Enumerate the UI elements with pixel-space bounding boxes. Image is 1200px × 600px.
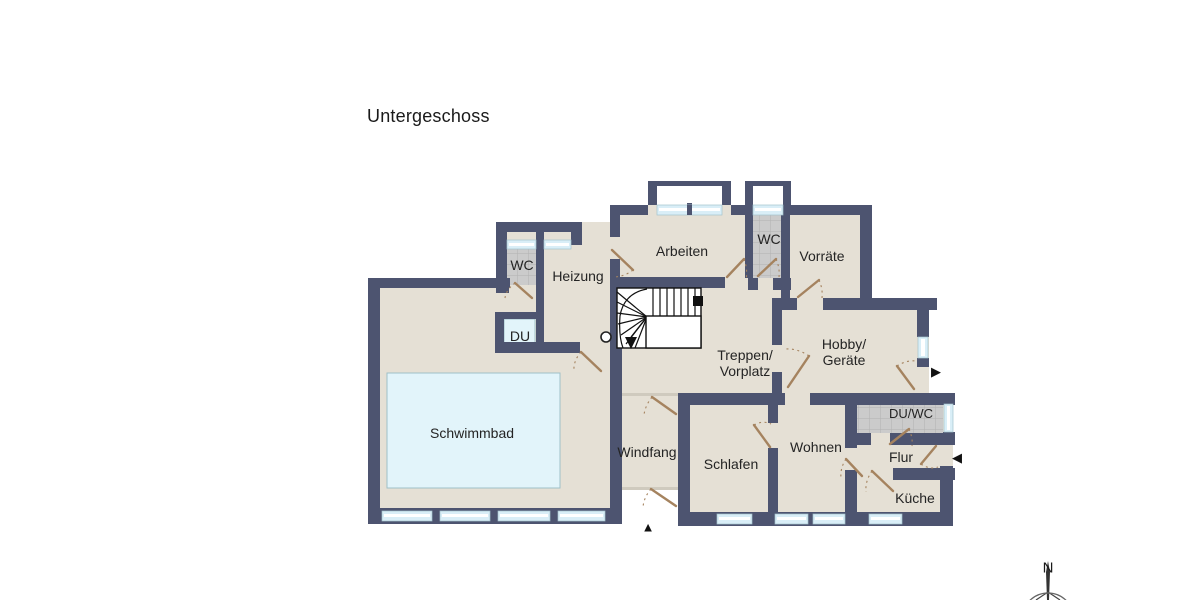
room-label-du-wc: DU/WC [889, 406, 933, 422]
windfang-threshold-top [622, 393, 678, 396]
entrance-arrow-east-icon: ▶ [931, 364, 941, 380]
room-label-treppen-line1: Treppen/ [717, 347, 773, 363]
staircase [617, 288, 703, 349]
room-label-hobby-line1: Hobby/ [822, 336, 866, 352]
room-label-wc-top: WC [757, 231, 780, 247]
entrance-arrow-south-icon: ▲ [642, 520, 655, 535]
room-label-heizung: Heizung [552, 268, 603, 284]
floorplan-drawing [0, 0, 1200, 600]
floorplan-canvas: Untergeschoss [0, 0, 1200, 600]
room-label-schwimmbad: Schwimmbad [430, 425, 514, 441]
room-label-windfang: Windfang [617, 444, 676, 460]
door-pivot-post [601, 332, 611, 342]
room-label-hobby-line2: Geräte [822, 352, 866, 368]
room-label-arbeiten: Arbeiten [656, 243, 708, 259]
room-label-schlafen: Schlafen [704, 456, 758, 472]
room-label-treppen-line2: Vorplatz [717, 363, 773, 379]
entrance-arrow-west-icon: ◀ [952, 450, 962, 466]
room-label-wohnen: Wohnen [790, 439, 842, 455]
room-label-flur: Flur [889, 449, 913, 465]
room-label-hobby-geraete: Hobby/ Geräte [822, 336, 866, 368]
room-label-kueche: Küche [895, 490, 935, 506]
compass-north-label: N [1043, 560, 1054, 577]
windfang-floor [622, 393, 678, 490]
room-label-du: DU [510, 328, 530, 344]
room-label-wc-left: WC [510, 257, 533, 273]
stair-handrail-end [693, 296, 703, 306]
room-label-vorraete: Vorräte [799, 248, 844, 264]
room-label-treppen-vorplatz: Treppen/ Vorplatz [717, 347, 773, 379]
